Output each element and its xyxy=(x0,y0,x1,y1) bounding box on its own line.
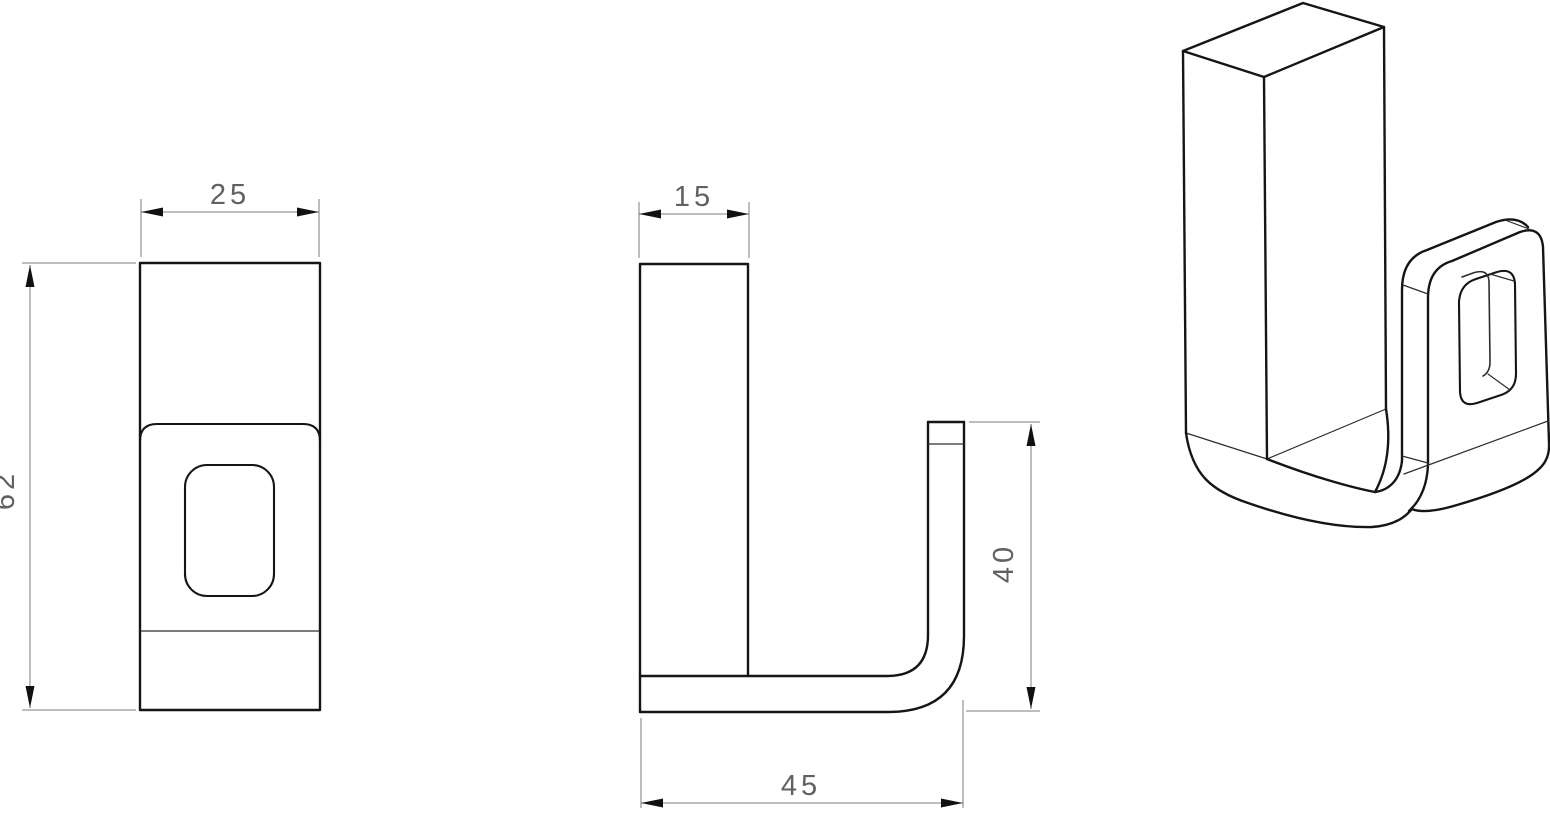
iso-rim-connector-bottom-left xyxy=(1402,456,1428,463)
arrow-left-icon xyxy=(639,210,661,219)
front-view: 25 62 xyxy=(0,179,320,710)
dim-front-width: 25 xyxy=(141,179,319,257)
arrow-up-icon xyxy=(1027,424,1036,446)
front-slot-hole xyxy=(185,465,274,596)
drawing-canvas: 25 62 15 xyxy=(0,0,1550,813)
arrow-up-icon xyxy=(26,265,35,287)
iso-outer-bottom-silhouette xyxy=(1186,433,1412,527)
iso-rim-connector-top-left xyxy=(1403,285,1428,294)
side-wall-outline xyxy=(640,264,748,712)
arrow-left-icon xyxy=(641,799,663,808)
iso-wall-top-face xyxy=(1183,3,1384,77)
iso-wall-front-edge xyxy=(1264,77,1267,459)
iso-plate-bend-tangent xyxy=(1404,421,1548,474)
iso-wall-right-edge xyxy=(1384,27,1386,409)
dim-front-height: 62 xyxy=(0,263,136,710)
dim-front-height-label: 62 xyxy=(0,470,21,510)
dim-side-wall-depth-label: 15 xyxy=(674,181,714,213)
side-view: 15 40 45 xyxy=(639,181,1040,808)
iso-wall-bend-tangent-front xyxy=(1267,409,1386,459)
isometric-view xyxy=(1183,3,1549,527)
iso-slot-hole-front xyxy=(1459,271,1516,404)
iso-slot-hole-corner-tangent-bottom xyxy=(1488,374,1510,390)
extension-lines xyxy=(22,263,136,710)
front-body-outline xyxy=(140,263,320,710)
dim-side-hook-height: 40 xyxy=(966,422,1040,711)
iso-arm-front-edge-sweep xyxy=(1409,465,1428,511)
arrow-right-icon xyxy=(727,210,749,219)
iso-wall-left-edge xyxy=(1183,51,1186,433)
arrow-down-icon xyxy=(1027,687,1036,709)
arrow-right-icon xyxy=(297,208,319,217)
front-plate-top-edge xyxy=(140,424,320,441)
iso-plate-front-outline xyxy=(1412,230,1549,511)
iso-wall-bend-tangent-left xyxy=(1186,433,1267,459)
iso-slot-hole-corner-tangent-top xyxy=(1490,274,1514,281)
arrow-down-icon xyxy=(26,686,35,708)
dim-side-wall-depth: 15 xyxy=(639,181,749,258)
iso-floor-left-edge xyxy=(1267,459,1375,492)
arrow-left-icon xyxy=(141,208,163,217)
iso-arm-back-edge-sweep xyxy=(1375,461,1402,492)
dim-side-total-depth-label: 45 xyxy=(781,770,821,802)
iso-slot-hole-back xyxy=(1462,272,1490,376)
arrow-right-icon xyxy=(941,799,963,808)
iso-floor-right-edge xyxy=(1375,409,1388,492)
drawing-sheet: 25 62 15 xyxy=(0,0,1550,813)
dim-front-width-label: 25 xyxy=(210,179,250,211)
dim-side-hook-height-label: 40 xyxy=(988,543,1020,583)
side-inner-profile xyxy=(640,422,928,676)
dim-side-total-depth: 45 xyxy=(641,700,963,808)
